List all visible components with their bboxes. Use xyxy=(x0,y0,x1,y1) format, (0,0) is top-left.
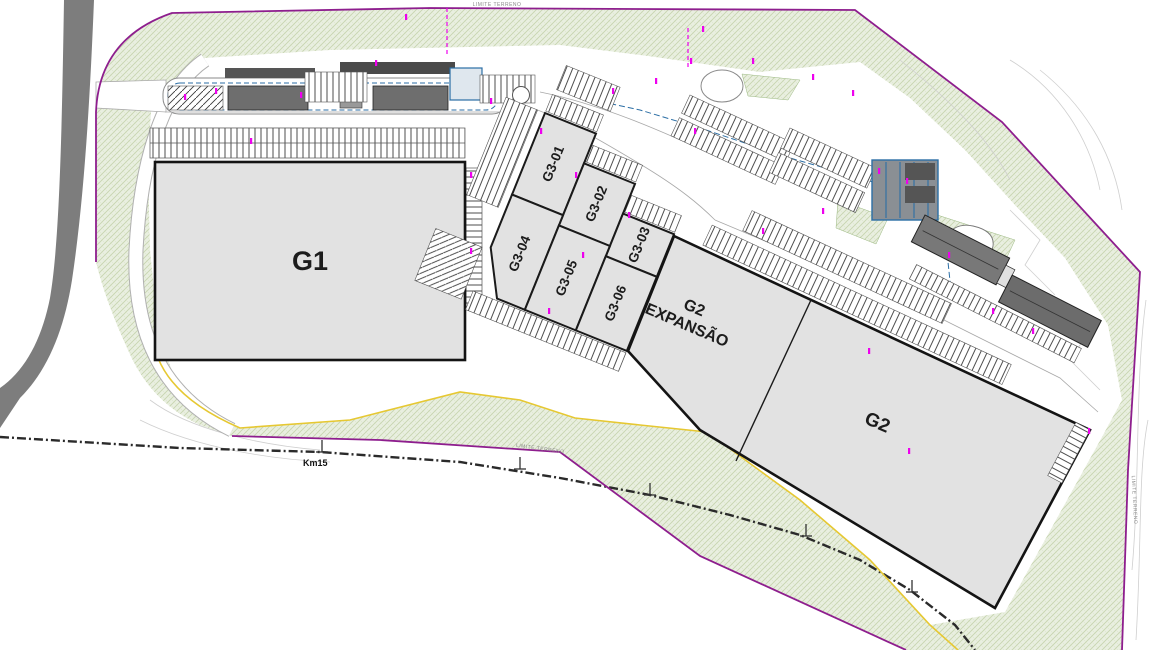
parking-block xyxy=(769,128,876,213)
g1-label: G1 xyxy=(292,246,328,276)
km-marker-label: Km15 xyxy=(303,458,328,468)
water-tank xyxy=(450,68,482,100)
dock-structure xyxy=(905,163,935,180)
green-island xyxy=(742,74,800,100)
gatehouse-building xyxy=(228,86,308,110)
boundary-label-top: LIMITE TERRENO xyxy=(473,2,522,8)
parking-strip xyxy=(305,72,367,102)
site-plan-drawing: G1 G3-01 G3-02 G3-03 G3-04 G3-05 G3-06 xyxy=(0,0,1153,650)
site-entrance xyxy=(96,80,166,112)
dock-structure xyxy=(905,186,935,203)
gatehouse-complex xyxy=(163,62,535,128)
loop-road xyxy=(701,70,743,102)
public-road xyxy=(0,0,94,428)
site-plan-canvas: G1 G3-01 G3-02 G3-03 G3-04 G3-05 G3-06 xyxy=(0,0,1153,650)
gatehouse-building-2 xyxy=(373,86,448,110)
entrance-canopy xyxy=(225,68,315,78)
parking-strip xyxy=(168,86,223,110)
boundary-label-right: LIMITE TERRENO xyxy=(1130,475,1139,524)
